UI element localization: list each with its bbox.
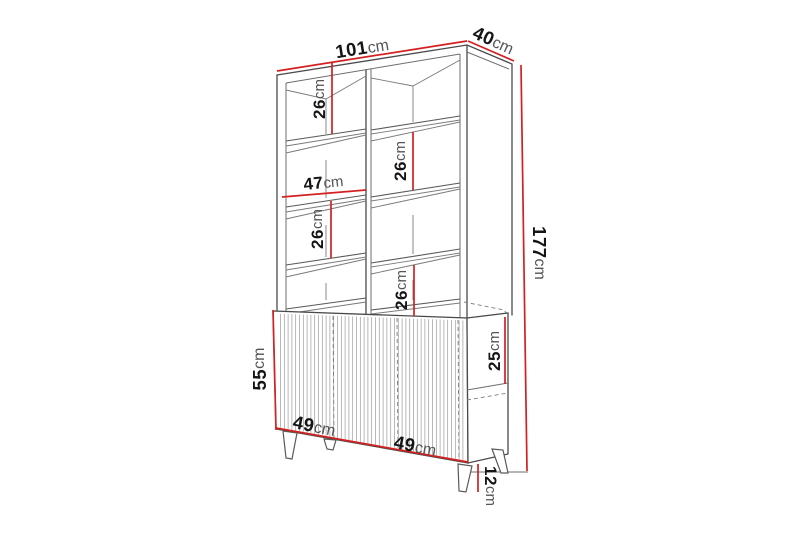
dim-label-gap-right-low: 26cm (392, 270, 411, 310)
hidden-top-edge (464, 302, 507, 314)
right-ceiling-edge (371, 60, 460, 86)
dim-label-gap-left-top: 26cm (310, 79, 329, 119)
right-shelf-1 (371, 116, 460, 130)
dim-label-leg-height: 12cm (482, 466, 501, 506)
right-shelf-3 (371, 249, 460, 263)
dim-label-gap-left-low: 26cm (308, 209, 327, 249)
dim-label-gap-right-top: 26cm (391, 141, 410, 181)
dim-line-total-height (521, 65, 527, 471)
middle-leg (324, 439, 336, 450)
front-right-leg (458, 464, 472, 492)
dim-label-shelf-width: 47cm (303, 171, 345, 194)
lower-sideboard (273, 302, 508, 463)
dim-label-drawer-height: 25cm (485, 331, 504, 371)
sideboard-front-panel (273, 311, 468, 463)
dim-label-total-width: 101cm (334, 33, 390, 62)
cabinet-dimension-diagram: 101cm 40cm 177cm 26cm 26cm 47cm 26cm 26c… (0, 0, 800, 533)
dim-label-base-height: 55cm (249, 348, 270, 391)
furniture-dimension-figure: 101cm 40cm 177cm 26cm 26cm 47cm 26cm 26c… (0, 0, 800, 533)
right-column-shelves (371, 60, 460, 314)
front-left-leg (283, 431, 297, 459)
right-shelf-2 (371, 183, 460, 197)
dim-label-total-height: 177cm (530, 226, 551, 280)
